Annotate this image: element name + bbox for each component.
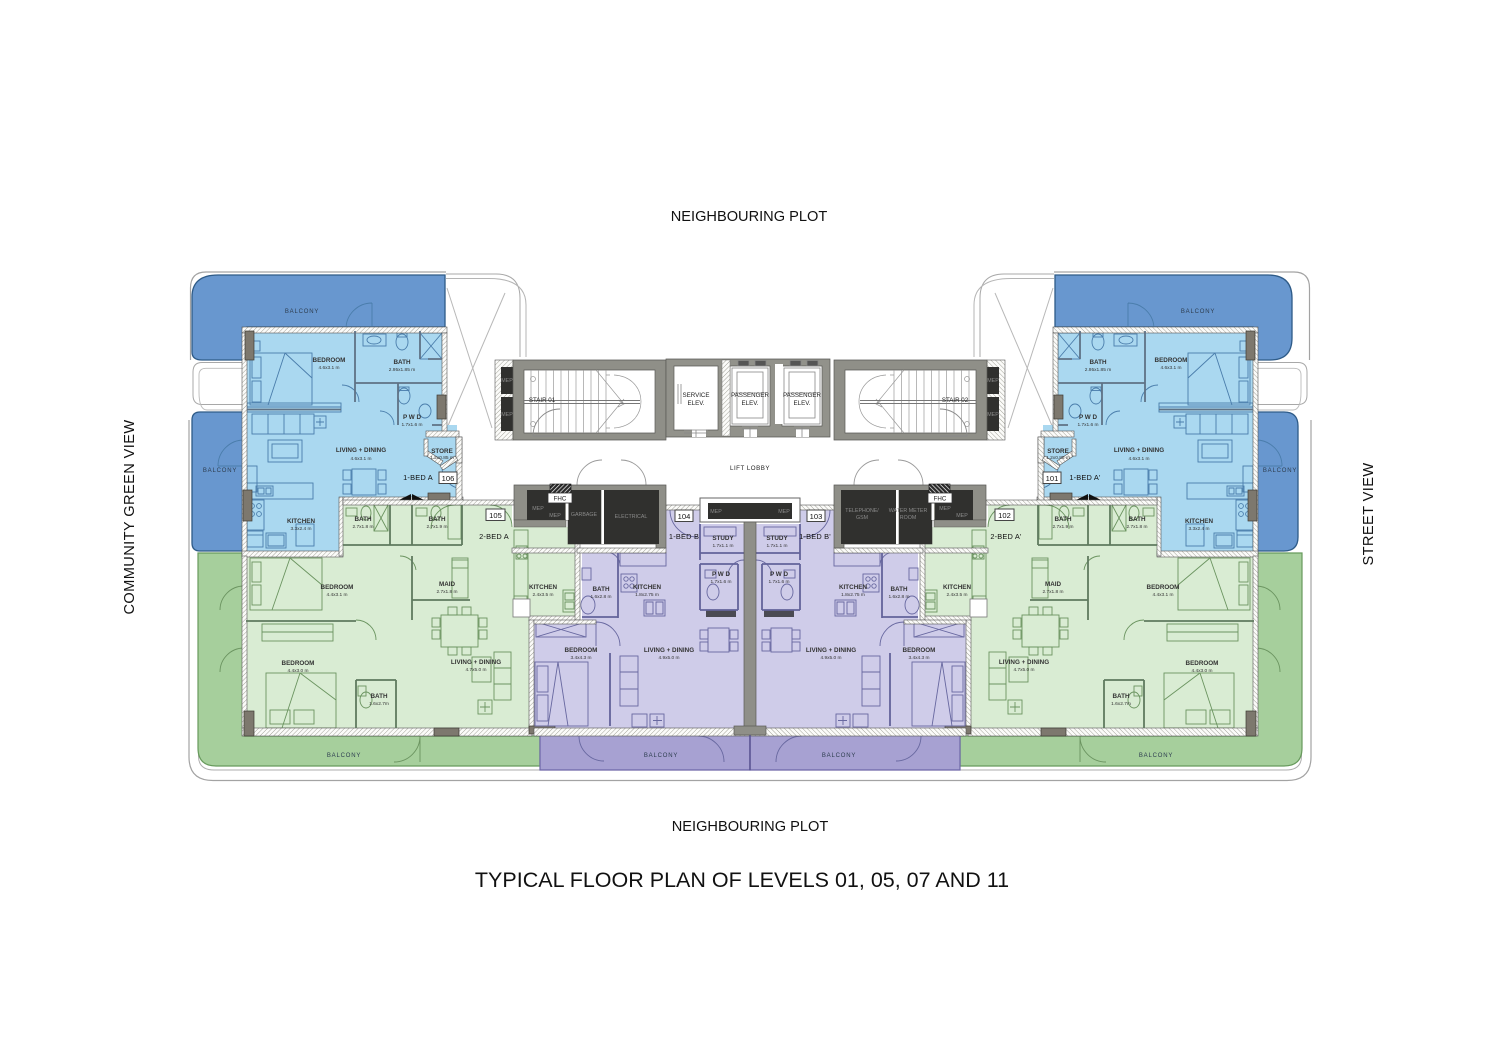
svg-text:2.95x1.85 m: 2.95x1.85 m <box>1085 367 1111 373</box>
svg-text:1.6x2.7m: 1.6x2.7m <box>369 701 389 707</box>
svg-text:1.7x1.6 m: 1.7x1.6 m <box>768 579 789 585</box>
svg-text:MEP: MEP <box>987 412 999 418</box>
svg-text:MEP: MEP <box>501 378 513 384</box>
svg-text:ELEV.: ELEV. <box>742 400 759 407</box>
svg-text:STUDY: STUDY <box>712 535 734 542</box>
svg-text:BATH: BATH <box>1054 516 1071 523</box>
svg-text:3.3x2.4 m: 3.3x2.4 m <box>1188 526 1209 532</box>
svg-text:STAIR 02: STAIR 02 <box>942 397 969 404</box>
svg-text:KITCHEN: KITCHEN <box>287 518 315 525</box>
svg-text:4.7x5.0 m: 4.7x5.0 m <box>465 667 486 673</box>
svg-text:GARBAGE: GARBAGE <box>571 512 598 518</box>
svg-text:1.8x2.75 m: 1.8x2.75 m <box>635 592 659 598</box>
svg-text:1.2x0.85 m: 1.2x0.85 m <box>430 455 454 461</box>
svg-text:WATER METER: WATER METER <box>889 508 928 514</box>
svg-text:P W D: P W D <box>403 414 422 421</box>
svg-text:NEIGHBOURING PLOT: NEIGHBOURING PLOT <box>671 209 828 225</box>
svg-text:MEP: MEP <box>778 509 790 515</box>
svg-text:4.4x3.0 m: 4.4x3.0 m <box>1191 668 1212 674</box>
svg-text:BEDROOM: BEDROOM <box>321 584 354 591</box>
svg-text:KITCHEN: KITCHEN <box>1185 518 1213 525</box>
svg-text:BEDROOM: BEDROOM <box>1186 660 1219 667</box>
svg-text:BALCONY: BALCONY <box>822 753 856 759</box>
svg-text:P W D: P W D <box>712 571 731 578</box>
svg-text:BATH: BATH <box>1089 359 1106 366</box>
svg-text:BATH: BATH <box>890 586 907 593</box>
svg-text:STORE: STORE <box>431 448 453 455</box>
svg-text:2.7x1.8 m: 2.7x1.8 m <box>1042 589 1063 595</box>
svg-text:2.7x1.8 m: 2.7x1.8 m <box>436 589 457 595</box>
svg-text:2-BED A': 2-BED A' <box>990 532 1022 541</box>
svg-text:NEIGHBOURING PLOT: NEIGHBOURING PLOT <box>672 819 829 835</box>
svg-text:LIVING + DINING: LIVING + DINING <box>999 659 1049 666</box>
svg-text:1-BED A: 1-BED A <box>403 473 433 482</box>
svg-text:FHC: FHC <box>934 496 947 503</box>
svg-text:BATH: BATH <box>354 516 371 523</box>
svg-text:KITCHEN: KITCHEN <box>943 584 971 591</box>
svg-text:SERVICE: SERVICE <box>682 392 709 399</box>
svg-text:ELECTRICAL: ELECTRICAL <box>615 514 648 520</box>
svg-text:KITCHEN: KITCHEN <box>529 584 557 591</box>
svg-text:4.6x3.1 m: 4.6x3.1 m <box>1128 456 1149 462</box>
svg-text:LIVING + DINING: LIVING + DINING <box>451 659 501 666</box>
svg-text:STAIR 01: STAIR 01 <box>529 397 556 404</box>
svg-text:BALCONY: BALCONY <box>1139 753 1173 759</box>
svg-text:BATH: BATH <box>592 586 609 593</box>
svg-text:BALCONY: BALCONY <box>644 753 678 759</box>
svg-text:P W D: P W D <box>770 571 789 578</box>
svg-text:BALCONY: BALCONY <box>327 753 361 759</box>
svg-text:BATH: BATH <box>1128 516 1145 523</box>
svg-text:1.7x1.6 m: 1.7x1.6 m <box>710 579 731 585</box>
svg-text:PASSENGER: PASSENGER <box>731 392 770 399</box>
svg-text:2.4x3.5 m: 2.4x3.5 m <box>946 592 967 598</box>
svg-text:COMMUNITY GREEN VIEW: COMMUNITY GREEN VIEW <box>122 419 138 614</box>
svg-text:1.7x1.1 m: 1.7x1.1 m <box>766 543 787 549</box>
svg-text:2.7x1.9 m: 2.7x1.9 m <box>1052 524 1073 530</box>
svg-text:1.6x2.7m: 1.6x2.7m <box>1111 701 1131 707</box>
svg-text:MEP: MEP <box>710 509 722 515</box>
svg-text:2.95x1.85 m: 2.95x1.85 m <box>389 367 415 373</box>
svg-text:106: 106 <box>442 474 455 483</box>
svg-text:GSM: GSM <box>856 515 868 521</box>
svg-text:2.7x1.8 m: 2.7x1.8 m <box>1126 524 1147 530</box>
svg-text:4.4x3.0 m: 4.4x3.0 m <box>287 668 308 674</box>
svg-text:1.2x0.85 m: 1.2x0.85 m <box>1046 455 1070 461</box>
svg-text:BEDROOM: BEDROOM <box>282 660 315 667</box>
svg-text:MAID: MAID <box>439 581 456 588</box>
svg-text:BATH: BATH <box>393 359 410 366</box>
svg-text:1.8x2.75 m: 1.8x2.75 m <box>841 592 865 598</box>
svg-text:4.4x3.1 m: 4.4x3.1 m <box>1152 592 1173 598</box>
svg-text:MAID: MAID <box>1045 581 1062 588</box>
svg-text:1.7x1.1 m: 1.7x1.1 m <box>712 543 733 549</box>
svg-text:104: 104 <box>678 512 691 521</box>
svg-text:ELEV.: ELEV. <box>794 400 811 407</box>
svg-text:PASSENGER: PASSENGER <box>783 392 822 399</box>
svg-text:MEP: MEP <box>501 412 513 418</box>
svg-text:4.6x3.1 m: 4.6x3.1 m <box>1160 365 1181 371</box>
svg-text:STREET VIEW: STREET VIEW <box>1361 462 1377 565</box>
svg-text:FHC: FHC <box>554 496 567 503</box>
svg-text:4.7x5.0 m: 4.7x5.0 m <box>1013 667 1034 673</box>
svg-text:4.4x3.1 m: 4.4x3.1 m <box>326 592 347 598</box>
svg-text:BALCONY: BALCONY <box>1181 309 1215 315</box>
svg-text:TYPICAL FLOOR PLAN OF LEVELS 0: TYPICAL FLOOR PLAN OF LEVELS 01, 05, 07 … <box>475 868 1009 892</box>
svg-text:1.7x1.6 m: 1.7x1.6 m <box>401 422 422 428</box>
svg-text:BEDROOM: BEDROOM <box>1147 584 1180 591</box>
svg-text:BEDROOM: BEDROOM <box>313 357 346 364</box>
svg-text:ROOM: ROOM <box>900 515 916 521</box>
svg-text:3.4x4.3 m: 3.4x4.3 m <box>570 655 591 661</box>
svg-text:3.4x4.3 m: 3.4x4.3 m <box>908 655 929 661</box>
svg-text:BEDROOM: BEDROOM <box>1155 357 1188 364</box>
svg-text:BALCONY: BALCONY <box>203 468 237 474</box>
svg-text:LIVING + DINING: LIVING + DINING <box>644 647 694 654</box>
svg-text:STUDY: STUDY <box>766 535 788 542</box>
svg-text:BALCONY: BALCONY <box>1263 468 1297 474</box>
svg-text:LIVING + DINING: LIVING + DINING <box>1114 447 1164 454</box>
svg-text:1-BED B': 1-BED B' <box>799 532 831 541</box>
svg-text:4.6x3.1 m: 4.6x3.1 m <box>318 365 339 371</box>
svg-text:MEP: MEP <box>987 378 999 384</box>
svg-text:MEP: MEP <box>939 506 951 512</box>
svg-text:KITCHEN: KITCHEN <box>839 584 867 591</box>
svg-text:1.6x2.8 m: 1.6x2.8 m <box>888 594 909 600</box>
svg-text:2.4x3.5 m: 2.4x3.5 m <box>532 592 553 598</box>
svg-text:ELEV.: ELEV. <box>688 400 705 407</box>
svg-text:4.9x5.0 m: 4.9x5.0 m <box>820 655 841 661</box>
svg-text:BEDROOM: BEDROOM <box>903 647 936 654</box>
svg-text:MEP: MEP <box>532 506 544 512</box>
svg-text:BATH: BATH <box>370 693 387 700</box>
svg-text:STORE: STORE <box>1047 448 1069 455</box>
svg-text:3.3x2.4 m: 3.3x2.4 m <box>290 526 311 532</box>
svg-text:MEP: MEP <box>549 513 561 519</box>
svg-text:BALCONY: BALCONY <box>285 309 319 315</box>
svg-text:2.7x1.8 m: 2.7x1.8 m <box>352 524 373 530</box>
svg-text:KITCHEN: KITCHEN <box>633 584 661 591</box>
svg-text:102: 102 <box>998 511 1011 520</box>
svg-text:P W D: P W D <box>1079 414 1098 421</box>
svg-text:1-BED A': 1-BED A' <box>1069 473 1101 482</box>
svg-text:103: 103 <box>810 512 823 521</box>
svg-text:101: 101 <box>1046 474 1059 483</box>
svg-text:2.7x1.9 m: 2.7x1.9 m <box>426 524 447 530</box>
svg-text:1.7x1.6 m: 1.7x1.6 m <box>1077 422 1098 428</box>
svg-text:TELEPHONE/: TELEPHONE/ <box>845 508 879 514</box>
svg-text:2-BED A: 2-BED A <box>479 532 509 541</box>
svg-text:MEP: MEP <box>956 513 968 519</box>
svg-text:4.6x3.1 m: 4.6x3.1 m <box>350 456 371 462</box>
svg-text:1-BED B: 1-BED B <box>669 532 699 541</box>
svg-text:BEDROOM: BEDROOM <box>565 647 598 654</box>
svg-text:LIVING + DINING: LIVING + DINING <box>336 447 386 454</box>
svg-text:BATH: BATH <box>1112 693 1129 700</box>
svg-text:LIFT LOBBY: LIFT LOBBY <box>730 465 770 472</box>
svg-text:4.9x5.0 m: 4.9x5.0 m <box>658 655 679 661</box>
svg-text:LIVING + DINING: LIVING + DINING <box>806 647 856 654</box>
svg-text:105: 105 <box>489 511 502 520</box>
svg-text:1.6x2.8 m: 1.6x2.8 m <box>590 594 611 600</box>
svg-text:BATH: BATH <box>428 516 445 523</box>
